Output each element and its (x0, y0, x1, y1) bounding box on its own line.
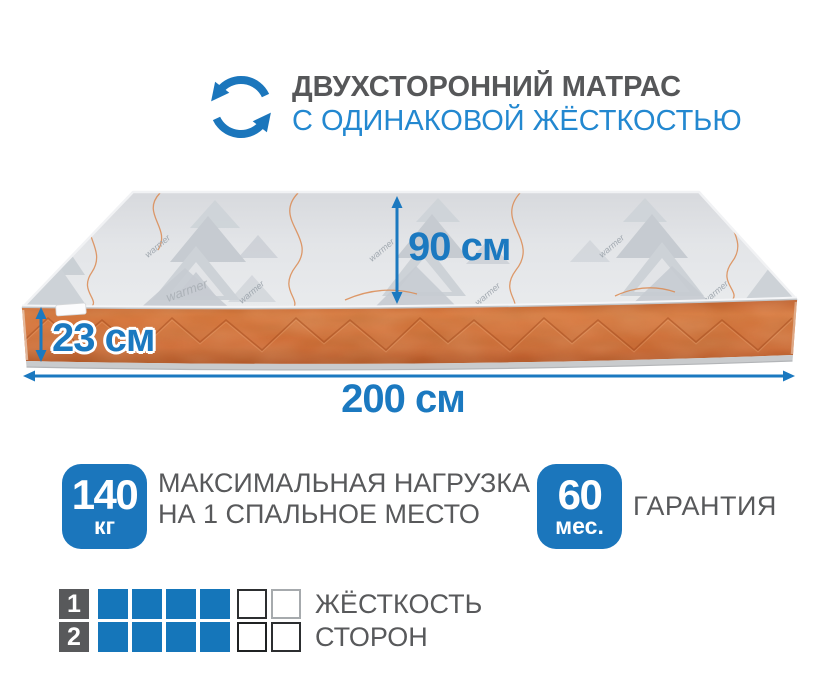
dimension-width-label: 90 см (408, 227, 510, 267)
rating-cell-filled (132, 589, 162, 619)
rating-cell-filled (166, 589, 196, 619)
rating-row-label: ЖЁСТКОСТЬ (315, 591, 482, 618)
warranty-unit: мес. (555, 515, 604, 538)
rating-row-number: 1 (59, 589, 89, 619)
rating-cell-filled (200, 589, 230, 619)
rating-cell-filled (200, 622, 230, 652)
max-load-value: 140 (72, 475, 138, 515)
rating-row-number: 2 (59, 622, 89, 652)
max-load-line-2: НА 1 СПАЛЬНОЕ МЕСТО (158, 499, 530, 530)
max-load-badge: 140 кг (62, 464, 147, 549)
warranty-description: ГАРАНТИЯ (633, 464, 777, 549)
rating-cell-filled (132, 622, 162, 652)
max-load-line-1: МАКСИМАЛЬНАЯ НАГРУЗКА (158, 468, 530, 499)
max-load-description: МАКСИМАЛЬНАЯ НАГРУЗКА НА 1 СПАЛЬНОЕ МЕСТ… (158, 468, 530, 530)
rating-cell-filled (166, 622, 196, 652)
max-load-unit: кг (94, 515, 115, 538)
rating-cell-empty (271, 589, 301, 619)
rating-cell-filled (98, 622, 128, 652)
rating-cell-empty (237, 589, 267, 619)
rating-row: 1ЖЁСТКОСТЬ (59, 589, 482, 619)
rating-row: 2СТОРОН (59, 622, 482, 652)
warranty-badge: 60 мес. (537, 464, 622, 549)
mattress-infographic: ДВУХСТОРОННИЙ МАТРАС С ОДИНАКОВОЙ ЖЁСТКО… (0, 0, 816, 700)
dimension-length-label: 200 см (293, 379, 513, 419)
mattress-tag (56, 303, 87, 316)
rating-row-label: СТОРОН (315, 624, 428, 651)
rating-cell-empty (237, 622, 267, 652)
dimension-height-label: 23 см (52, 318, 154, 358)
header: ДВУХСТОРОННИЙ МАТРАС С ОДИНАКОВОЙ ЖЁСТКО… (292, 72, 742, 137)
rating-cell-empty (271, 622, 301, 652)
two-sided-rotation-icon (202, 70, 280, 144)
ratings-grid: 1ЖЁСТКОСТЬ2СТОРОН (59, 589, 482, 655)
page-subtitle: С ОДИНАКОВОЙ ЖЁСТКОСТЬЮ (292, 106, 742, 136)
rating-cell-filled (98, 589, 128, 619)
page-title: ДВУХСТОРОННИЙ МАТРАС (292, 72, 742, 102)
warranty-value: 60 (558, 475, 602, 515)
